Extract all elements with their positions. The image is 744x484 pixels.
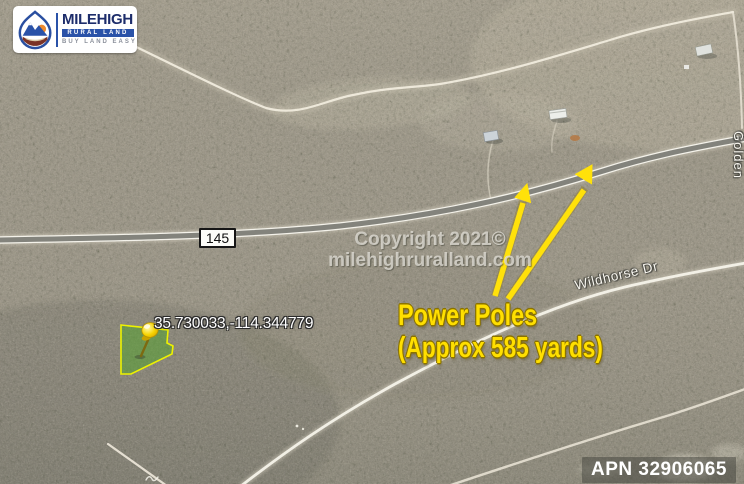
annotation-line2: (Approx 585 yards) xyxy=(398,332,603,365)
small-structure xyxy=(296,425,299,428)
route-145-shield: 145 xyxy=(199,228,236,248)
apn-badge: APN 32906065 xyxy=(582,457,736,483)
power-poles-annotation: Power Poles (Approx 585 yards) xyxy=(398,299,603,365)
milehigh-logo-icon xyxy=(16,9,54,51)
building-shed xyxy=(684,65,689,69)
watermark-line1: Copyright 2021© xyxy=(310,229,550,250)
milehigh-logo: MILEHIGH RURAL LAND BUY LAND EASY xyxy=(13,6,137,53)
dirt-patch xyxy=(570,135,580,141)
annotation-line1: Power Poles xyxy=(398,299,603,332)
logo-banner-text: RURAL LAND xyxy=(62,29,134,37)
logo-tagline-text: BUY LAND EASY xyxy=(62,38,134,47)
satellite-map-view: MILEHIGH RURAL LAND BUY LAND EASY 145 Co… xyxy=(0,0,744,484)
watermark-line2: milehighruralland.com xyxy=(310,250,550,271)
logo-brand-text: MILEHIGH xyxy=(62,12,134,28)
logo-divider xyxy=(56,13,58,47)
copyright-watermark: Copyright 2021© milehighruralland.com xyxy=(310,229,550,271)
building-house-mid xyxy=(549,108,567,119)
parcel-coordinates-label: 35.730033,-114.344779 xyxy=(154,315,313,333)
road-label-golden: Golden xyxy=(731,131,744,179)
small-structure xyxy=(302,428,304,430)
